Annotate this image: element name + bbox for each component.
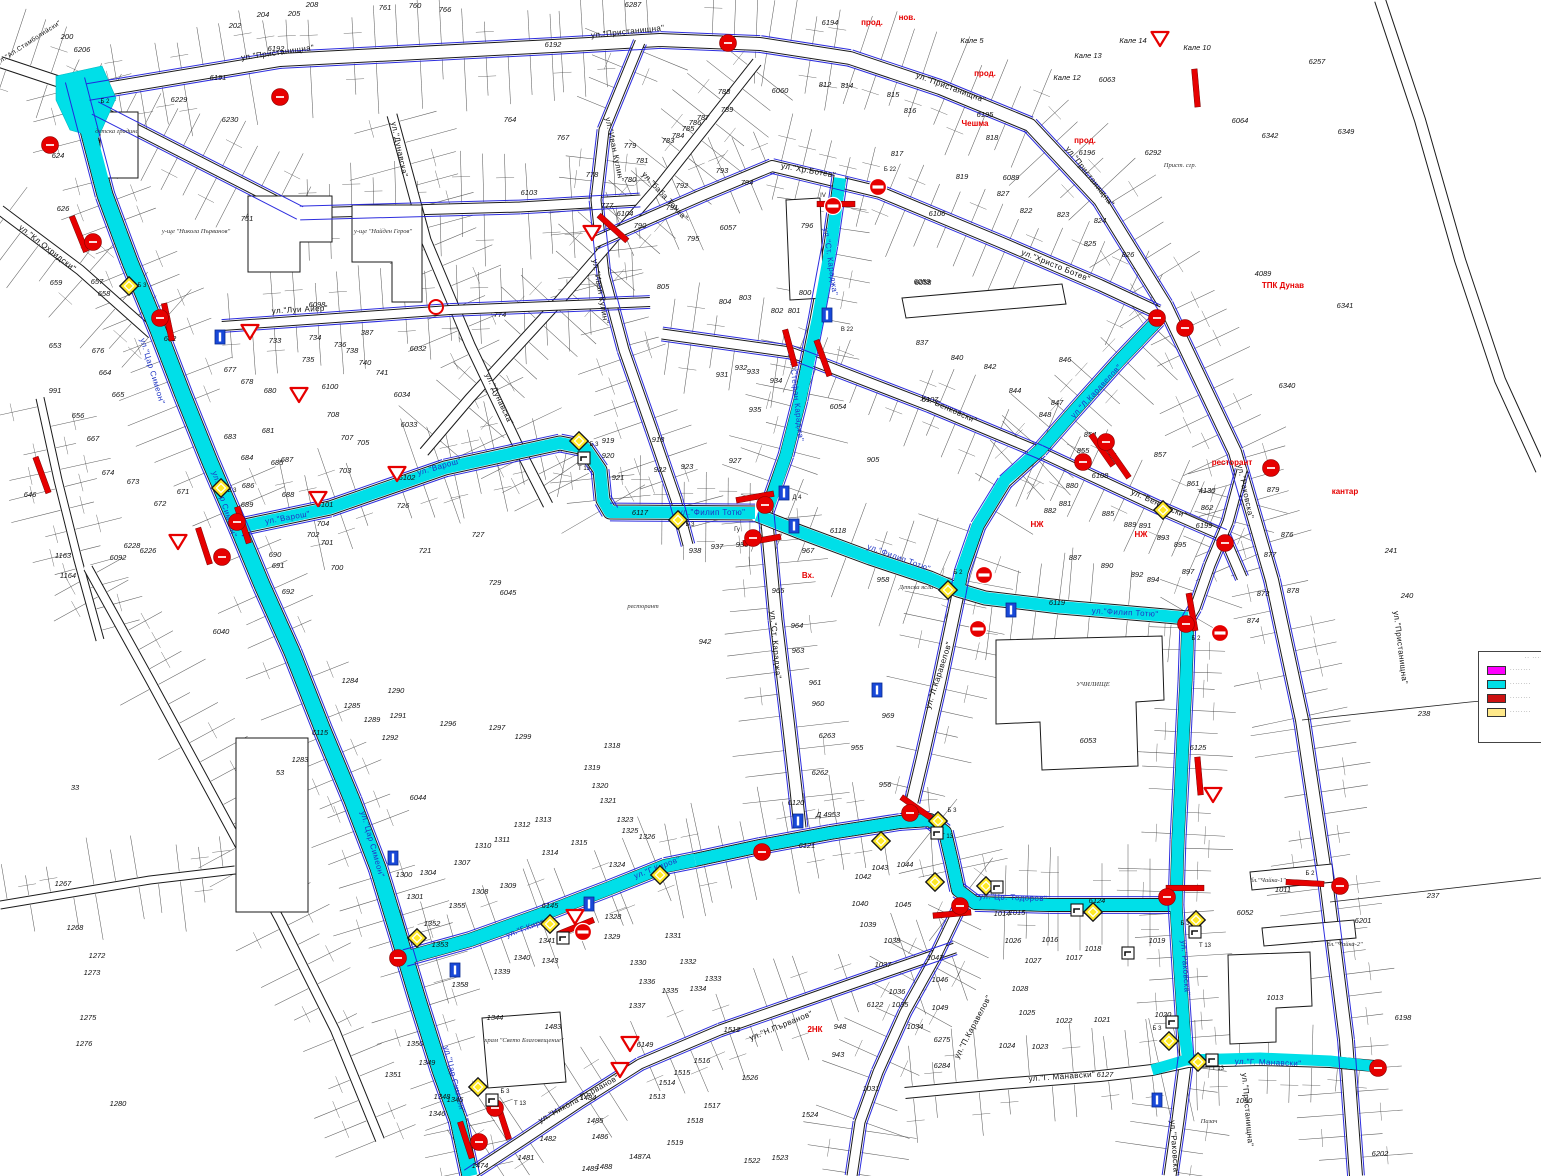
parcel-boundary-line xyxy=(991,60,1008,101)
parcel-boundary-line xyxy=(1142,347,1177,380)
parcel-boundary-line xyxy=(1033,90,1050,97)
route-guide-line xyxy=(610,503,755,504)
parcel-number: 1340 xyxy=(514,953,532,962)
parcel-boundary-line xyxy=(507,375,515,391)
parcel-number: 1036 xyxy=(889,987,907,996)
parcel-number: 1523 xyxy=(772,1153,790,1162)
parcel-boundary-line xyxy=(1091,563,1094,601)
parcel-boundary-line xyxy=(158,748,180,760)
parcel-boundary-line xyxy=(995,511,1033,534)
parcel-boundary-line xyxy=(1115,1141,1167,1148)
parcel-number: 6057 xyxy=(720,223,738,232)
red-sign-marker xyxy=(390,950,407,967)
parcel-boundary-line xyxy=(725,629,770,634)
parcel-boundary-line xyxy=(1197,862,1198,880)
parcel-boundary-line xyxy=(639,234,651,248)
parcel-boundary-line xyxy=(1134,222,1164,240)
parcel-boundary-line xyxy=(420,60,422,108)
parcel-number: 6145 xyxy=(542,901,560,910)
parcel-boundary-line xyxy=(1038,564,1042,597)
parcel-number: 842 xyxy=(984,362,997,371)
parcel-boundary-line xyxy=(1257,672,1261,690)
sign-glyph xyxy=(876,686,878,695)
parcel-boundary-line xyxy=(436,380,460,400)
legend-swatch xyxy=(1487,680,1506,689)
sign-code-label: Д 4 xyxy=(792,495,802,501)
parcel-boundary-line xyxy=(991,204,1002,232)
parcel-boundary-line xyxy=(667,443,707,457)
parcel-number: 6206 xyxy=(74,45,92,54)
parcel-boundary-line xyxy=(995,556,1001,573)
parcel-number: 931 xyxy=(716,370,729,379)
parcel-boundary-line xyxy=(885,408,902,414)
parcel-boundary-line xyxy=(973,243,987,276)
map-note: УЧИЛИЩЕ xyxy=(1076,681,1109,688)
map-note: Пазач xyxy=(1200,1118,1218,1125)
red-sign-marker xyxy=(1075,454,1092,471)
parcel-boundary-line xyxy=(729,436,780,449)
parcel-boundary-line xyxy=(318,325,321,366)
parcel-boundary-line xyxy=(901,1060,908,1076)
parcel-number: 1296 xyxy=(440,719,458,728)
parcel-number: 686 xyxy=(242,481,255,490)
parcel-boundary-line xyxy=(733,751,785,757)
parcel-boundary-line xyxy=(464,58,467,111)
parcel-boundary-line xyxy=(310,66,313,118)
priority-road-sign xyxy=(926,873,944,891)
parcel-boundary-line xyxy=(757,787,766,837)
parcel-number: 1023 xyxy=(1032,1042,1050,1051)
parcel-boundary-line xyxy=(947,127,964,134)
parcel-boundary-line xyxy=(261,704,303,720)
parcel-number: 790 xyxy=(634,221,647,230)
sign-plate xyxy=(1122,947,1134,959)
parcel-number: 823 xyxy=(1057,210,1070,219)
parcel-boundary-line xyxy=(1122,197,1162,222)
parcel-boundary-line xyxy=(1348,992,1382,996)
map-note: у-ще "Найден Геров" xyxy=(353,228,412,235)
parcel-number: 6263 xyxy=(819,731,837,740)
parcel-boundary-line xyxy=(689,158,719,182)
parcel-number: 923 xyxy=(681,462,694,471)
parcel-number: 6115 xyxy=(312,728,329,737)
parcel-boundary-line xyxy=(50,549,54,566)
parcel-number: 824 xyxy=(1094,216,1107,225)
parcel-boundary-line xyxy=(583,52,586,97)
parcel-boundary-line xyxy=(756,445,762,462)
parcel-boundary-line xyxy=(456,1033,461,1050)
parcel-boundary-line xyxy=(128,406,178,426)
sign-plate xyxy=(557,932,569,944)
parcel-number: 6034 xyxy=(394,390,411,399)
parcel-boundary-line xyxy=(1026,1035,1029,1075)
info-sign xyxy=(779,486,789,500)
parcel-boundary-line xyxy=(970,202,987,209)
parcel-boundary-line xyxy=(834,964,851,970)
parcel-boundary-line xyxy=(528,10,530,39)
parcel-boundary-line xyxy=(544,326,577,357)
parcel-number: 6121 xyxy=(799,841,816,850)
parcel-boundary-line xyxy=(739,716,781,721)
parcel-number: 656 xyxy=(72,411,85,420)
parcel-boundary-line xyxy=(922,422,939,429)
parcel-number: 6044 xyxy=(410,793,427,802)
road-closure-bar xyxy=(1195,757,1204,795)
parcel-number: 6341 xyxy=(1337,301,1354,310)
parcel-number: 1513 xyxy=(649,1092,667,1101)
sign-glyph xyxy=(1153,317,1161,319)
parcel-boundary-line xyxy=(1251,729,1296,736)
parcel-number: 794 xyxy=(741,178,754,187)
parcel-boundary-line xyxy=(887,676,932,686)
route-guide-line xyxy=(901,828,931,830)
parcel-boundary-line xyxy=(440,1168,444,1176)
parcel-boundary-line xyxy=(623,317,649,324)
parcel-boundary-line xyxy=(1151,335,1171,345)
parcel-boundary-line xyxy=(505,320,521,335)
sign-glyph xyxy=(1163,896,1171,898)
parcel-boundary-line xyxy=(1161,1075,1171,1119)
parcel-number: 958 xyxy=(877,575,890,584)
parcel-boundary-line xyxy=(862,89,879,95)
parcel-number: 927 xyxy=(729,456,742,465)
parcel-boundary-line xyxy=(549,473,589,493)
parcel-number: 1353 xyxy=(432,940,450,949)
parcel-number: 701 xyxy=(321,538,334,547)
sign-code-label: Б 3 xyxy=(686,522,696,528)
parcel-boundary-line xyxy=(937,226,946,247)
parcel-number: 879 xyxy=(1267,485,1280,494)
parcel-boundary-line xyxy=(275,989,308,1006)
parcel-boundary-line xyxy=(734,0,735,35)
parcel-number: 202 xyxy=(228,21,242,30)
crossroads-sign xyxy=(991,881,1003,893)
parcel-boundary-line xyxy=(973,1031,978,1079)
poi-red-label: нов. xyxy=(899,13,916,22)
parcel-number: 767 xyxy=(557,133,570,142)
parcel-boundary-line xyxy=(376,63,379,114)
parcel-boundary-line xyxy=(774,416,778,433)
parcel-boundary-line xyxy=(708,154,725,161)
crossroads-sign xyxy=(578,452,590,464)
red-sign-marker xyxy=(42,137,59,154)
parcel-boundary-line xyxy=(1026,235,1043,242)
parcel-number: 6228 xyxy=(124,541,142,550)
parcel-boundary-line xyxy=(107,580,128,592)
parcel-number: 6149 xyxy=(637,1040,655,1049)
map-note: у-ще "Никола Първанов" xyxy=(161,228,231,235)
parcel-number: 646 xyxy=(24,490,37,499)
parcel-boundary-line xyxy=(141,613,150,629)
parcel-boundary-line xyxy=(691,1067,708,1074)
parcel-boundary-line xyxy=(612,269,624,283)
parcel-boundary-line xyxy=(794,452,820,459)
parcel-boundary-line xyxy=(808,394,843,401)
red-sign-marker xyxy=(1370,1060,1387,1077)
parcel-number: 6127 xyxy=(1097,1070,1115,1079)
parcel-boundary-line xyxy=(1075,363,1087,376)
sign-plate xyxy=(1166,1016,1178,1028)
parcel-number: 890 xyxy=(1101,561,1114,570)
parcel-number: Кале 5 xyxy=(960,36,984,45)
priority-road-sign xyxy=(1160,1032,1178,1050)
crossroads-sign xyxy=(557,932,569,944)
sign-glyph xyxy=(218,556,226,558)
parcel-boundary-line xyxy=(1171,479,1187,486)
parcel-number: 6194 xyxy=(822,18,839,27)
parcel-boundary-line xyxy=(1285,794,1306,797)
parcel-number: 1324 xyxy=(609,860,626,869)
street-surface xyxy=(88,568,380,1140)
parcel-boundary-line xyxy=(649,477,655,494)
parcel-boundary-line xyxy=(1176,396,1184,412)
parcel-number: 844 xyxy=(1009,386,1022,395)
parcel-number: 818 xyxy=(986,133,999,142)
poi-red-label: ресторант xyxy=(1212,458,1253,467)
sign-glyph xyxy=(1079,461,1087,463)
no-entry-sign xyxy=(825,198,842,215)
parcel-boundary-line xyxy=(632,252,634,297)
parcel-boundary-line xyxy=(1252,718,1294,727)
parcel-boundary-line xyxy=(745,772,787,777)
parcel-number: 1038 xyxy=(884,936,902,945)
parcel-number: 1524 xyxy=(802,1110,819,1119)
parcel-boundary-line xyxy=(607,246,657,251)
parcel-number: 822 xyxy=(1020,206,1033,215)
parcel-number: 6192 xyxy=(545,40,563,49)
red-sign-marker xyxy=(85,234,102,251)
parcel-boundary-line xyxy=(496,1165,515,1176)
parcel-number: 1285 xyxy=(344,701,362,710)
parcel-boundary-line xyxy=(1330,854,1350,857)
parcel-number: 774 xyxy=(494,310,507,319)
parcel-boundary-line xyxy=(810,507,817,527)
parcel-number: 880 xyxy=(1066,481,1079,490)
parcel-boundary-line xyxy=(954,827,1004,839)
map-legend: ·· ···· ································ xyxy=(1478,651,1541,743)
sign-code-label: Б 22 xyxy=(884,167,897,173)
parcel-boundary-line xyxy=(712,0,714,35)
parcel-number: Кале 13 xyxy=(1074,51,1102,60)
parcel-boundary-line xyxy=(584,1059,599,1069)
parcel-number: 1323 xyxy=(617,815,635,824)
parcel-boundary-line xyxy=(660,425,691,436)
parcel-number: 934 xyxy=(770,376,783,385)
sign-glyph xyxy=(783,489,785,498)
parcel-boundary-line xyxy=(904,408,919,446)
sign-glyph xyxy=(219,333,221,342)
parcel-number: 905 xyxy=(867,455,880,464)
parcel-boundary-line xyxy=(226,140,242,148)
parcel-boundary-line xyxy=(263,662,270,679)
parcel-boundary-line xyxy=(1074,1085,1077,1117)
parcel-boundary-line xyxy=(369,941,391,948)
parcel-boundary-line xyxy=(1001,409,1009,429)
map-note: бл."Чайка-2" xyxy=(1327,941,1363,948)
parcel-boundary-line xyxy=(696,867,706,916)
legend-item-0: ········ xyxy=(1479,663,1541,677)
map-note: Детска ясла xyxy=(898,584,933,591)
building-footprint xyxy=(236,738,308,912)
parcel-number: 241 xyxy=(1384,546,1398,555)
parcel-number: 1280 xyxy=(110,1099,128,1108)
parcel-number: 6199 xyxy=(1196,521,1214,530)
parcel-boundary-line xyxy=(850,384,857,403)
parcel-boundary-line xyxy=(559,11,561,38)
parcel-number: 33 xyxy=(71,783,80,792)
parcel-number: 704 xyxy=(317,519,330,528)
map-note: детска градина xyxy=(95,128,139,135)
sign-glyph xyxy=(1181,327,1189,329)
parcel-number: 943 xyxy=(832,1050,845,1059)
parcel-boundary-line xyxy=(159,659,206,684)
parcel-number: 684 xyxy=(241,453,254,462)
parcel-number: 805 xyxy=(657,282,670,291)
parcel-boundary-line xyxy=(1309,707,1348,715)
parcel-number: 6201 xyxy=(1355,916,1372,925)
parcel-number: 918 xyxy=(652,435,665,444)
parcel-boundary-line xyxy=(778,558,828,563)
parcel-number: 1349 xyxy=(419,1058,437,1067)
street-name-label: ул."Пристанищна" xyxy=(1392,611,1410,685)
parcel-number: 1522 xyxy=(744,1156,762,1165)
parcel-number: 938 xyxy=(689,546,702,555)
parcel-number: 681 xyxy=(262,426,275,435)
parcel-boundary-line xyxy=(762,53,767,87)
parcel-number: 955 xyxy=(851,743,864,752)
parcel-number: 819 xyxy=(956,172,969,181)
sign-glyph xyxy=(588,900,590,909)
parcel-number: 53 xyxy=(276,768,285,777)
parcel-number: 816 xyxy=(904,106,917,115)
parcel-boundary-line xyxy=(712,1005,729,1011)
parcel-number: 826 xyxy=(1122,250,1135,259)
parcel-boundary-line xyxy=(67,579,76,595)
parcel-boundary-line xyxy=(1232,414,1261,428)
parcel-number: 1047 xyxy=(927,953,945,962)
parcel-number: 664 xyxy=(99,368,112,377)
parcel-number: 1331 xyxy=(665,931,682,940)
parcel-boundary-line xyxy=(110,850,115,881)
parcel-boundary-line xyxy=(1190,732,1217,733)
parcel-boundary-line xyxy=(766,391,770,408)
street-surface xyxy=(0,870,235,905)
parcel-boundary-line xyxy=(790,465,818,475)
parcel-boundary-line xyxy=(698,79,709,93)
parcel-boundary-line xyxy=(792,1033,809,1039)
parcel-number: 6104 xyxy=(617,209,634,218)
parcel-boundary-line xyxy=(1012,260,1025,289)
sign-glyph xyxy=(749,537,757,539)
parcel-number: 6202 xyxy=(1372,1149,1390,1158)
parcel-number: 6092 xyxy=(110,553,128,562)
parcel-boundary-line xyxy=(753,968,767,1007)
parcel-number: 200 xyxy=(60,32,74,41)
legend-label: ········ xyxy=(1510,667,1531,673)
parcel-boundary-line xyxy=(203,119,222,156)
street-name-label: ул."Л.Каравелов" xyxy=(1069,363,1123,420)
parcel-boundary-line xyxy=(343,1010,351,1026)
parcel-boundary-line xyxy=(204,511,211,528)
parcel-boundary-line xyxy=(373,5,375,47)
parcel-boundary-line xyxy=(429,215,473,227)
parcel-number: 6198 xyxy=(1395,1013,1413,1022)
parcel-boundary-line xyxy=(253,932,261,948)
sign-glyph xyxy=(1156,1096,1158,1105)
parcel-number: 729 xyxy=(489,578,502,587)
parcel-boundary-line xyxy=(862,1153,909,1160)
parcel-boundary-line xyxy=(139,887,144,919)
parcel-number: 1026 xyxy=(1005,936,1023,945)
parcel-boundary-line xyxy=(1106,390,1118,403)
parcel-boundary-line xyxy=(568,311,570,352)
parcel-number: 6262 xyxy=(812,768,830,777)
crossroads-sign xyxy=(1166,1016,1178,1028)
parcel-number: 921 xyxy=(612,473,625,482)
parcel-number: 678 xyxy=(241,377,254,386)
info-sign xyxy=(450,963,460,977)
map-viewport[interactable]: ул."Ал.Стамболийски"ул."Пристанищна"ул."… xyxy=(0,0,1541,1176)
parcel-number: 6195 xyxy=(977,110,995,119)
red-sign-marker xyxy=(952,898,969,915)
parcel-boundary-line xyxy=(1202,311,1210,327)
parcel-number: 796 xyxy=(801,221,814,230)
parcel-boundary-line xyxy=(671,299,675,329)
parcel-number: 205 xyxy=(287,9,301,18)
parcel-boundary-line xyxy=(1149,978,1173,980)
parcel-number: 1276 xyxy=(76,1039,94,1048)
parcel-boundary-line xyxy=(205,358,211,375)
parcel-boundary-line xyxy=(918,514,968,532)
parcel-number: 237 xyxy=(1426,891,1440,900)
parcel-boundary-line xyxy=(1142,766,1175,768)
parcel-number: 1042 xyxy=(855,872,873,881)
sign-code-label: В 22 xyxy=(841,327,854,333)
parcel-boundary-line xyxy=(1089,405,1112,426)
parcel-boundary-line xyxy=(780,582,816,585)
map-note: бл."Чайка-1" xyxy=(1250,877,1286,884)
sign-glyph xyxy=(1336,885,1344,887)
parcel-number: 6108 xyxy=(1092,471,1110,480)
parcel-number: Кале 14 xyxy=(1119,36,1146,45)
parcel-number: 1027 xyxy=(1025,956,1043,965)
parcel-boundary-line xyxy=(922,518,938,567)
parcel-boundary-line xyxy=(1092,1028,1095,1070)
parcel-number: Кале 10 xyxy=(1183,43,1211,52)
parcel-number: 815 xyxy=(887,90,900,99)
parcel-boundary-line xyxy=(150,274,180,286)
parcel-boundary-line xyxy=(562,511,601,533)
parcel-number: 889 xyxy=(1124,520,1137,529)
parcel-number: 6054 xyxy=(830,402,847,411)
parcel-boundary-line xyxy=(77,204,83,221)
parcel-boundary-line xyxy=(922,791,945,797)
parcel-boundary-line xyxy=(388,1102,395,1119)
info-sign xyxy=(1006,603,1016,617)
parcel-number: 677 xyxy=(224,365,237,374)
parcel-boundary-line xyxy=(351,1043,381,1055)
parcel-number: 1515 xyxy=(674,1068,692,1077)
parcel-number: 1482 xyxy=(540,1134,558,1143)
parcel-number: 1016 xyxy=(1042,935,1060,944)
parcel-boundary-line xyxy=(1,864,7,899)
parcel-boundary-line xyxy=(554,868,565,897)
parcel-boundary-line xyxy=(262,151,280,186)
parcel-number: 1034 xyxy=(907,1022,924,1031)
parcel-number: 6284 xyxy=(934,1061,951,1070)
parcel-number: 960 xyxy=(812,699,825,708)
parcel-number: 1307 xyxy=(454,858,472,867)
